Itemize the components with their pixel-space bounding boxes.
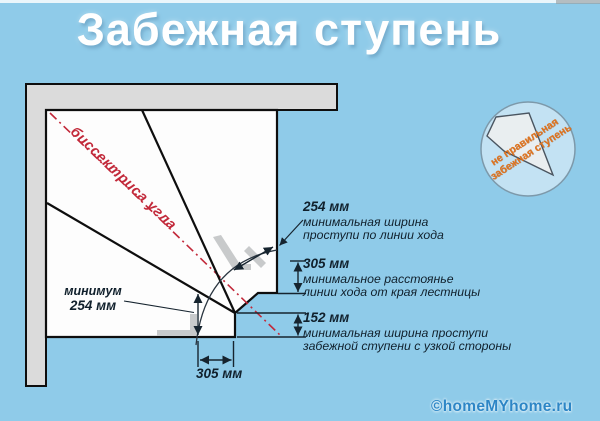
annotation-minimum: минимум 254 мм [56, 285, 130, 313]
annotation-line: минимальное расстоянье [303, 273, 480, 286]
annotation-value: 305 мм [303, 256, 480, 271]
annotation-narrow-width: 152 мм минимальная ширина проступи забеж… [303, 310, 511, 353]
diagram-drawing [0, 0, 600, 421]
annotation-tread-width: 254 мм минимальная ширина проступи по ли… [303, 199, 444, 242]
annotation-line: забежной ступени с узкой стороны [303, 340, 511, 353]
annotation-305-bottom: 305 мм [196, 366, 242, 381]
annotation-value: 152 мм [303, 310, 511, 325]
annotation-line: проступи по линии хода [303, 229, 444, 242]
annotation-walkline-distance: 305 мм минимальное расстоянье линии хода… [303, 256, 480, 299]
winder-step-diagram: Забежная ступень [0, 0, 600, 421]
annotation-line: линии хода от края лестницы [303, 286, 480, 299]
annotation-value: 254 мм [303, 199, 444, 214]
annotation-line: минимум [56, 285, 130, 298]
annotation-value: 254 мм [56, 298, 130, 313]
watermark: ©homeMYhome.ru [431, 398, 572, 416]
leader-254 [280, 220, 304, 246]
annotation-line: минимальная ширина проступи [303, 327, 511, 340]
annotation-line: минимальная ширина [303, 216, 444, 229]
